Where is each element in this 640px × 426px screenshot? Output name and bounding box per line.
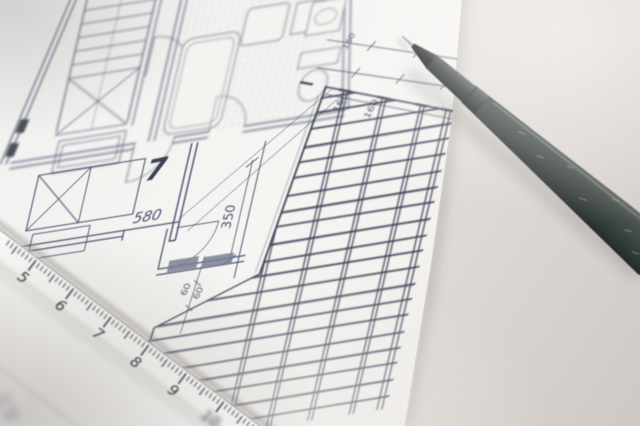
photo-architectural-plan: 7 580 350 (0, 0, 640, 426)
vignette-top-left (0, 0, 640, 426)
